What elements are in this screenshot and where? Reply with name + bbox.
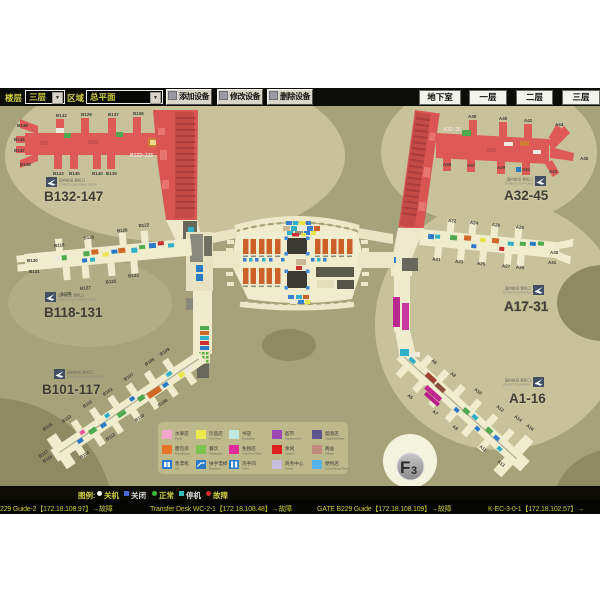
svg-text:B145: B145: [69, 171, 80, 176]
svg-text:国内航班 登机口: 国内航班 登机口: [67, 370, 94, 375]
svg-text:国内航班 登机口: 国内航班 登机口: [505, 378, 532, 383]
svg-text:A1-16: A1-16: [509, 391, 546, 406]
svg-text:Convenience Store: Convenience Store: [325, 467, 349, 471]
svg-text:Breadhouse: Breadhouse: [175, 452, 191, 456]
svg-text:DOMESTIC BOARDING: DOMESTIC BOARDING: [503, 383, 531, 387]
svg-text:Supermarket: Supermarket: [285, 437, 301, 441]
svg-text:国内航班 登机口: 国内航班 登机口: [507, 177, 534, 182]
svg-text:A26: A26: [492, 222, 501, 228]
svg-text:B148: B148: [17, 123, 28, 128]
svg-text:B129: B129: [81, 112, 92, 117]
svg-text:B132~135: B132~135: [130, 153, 153, 159]
svg-text:Fruits: Fruits: [175, 437, 183, 441]
svg-text:B139: B139: [106, 171, 117, 176]
svg-text:B118: B118: [54, 242, 65, 248]
svg-text:3: 3: [411, 465, 417, 477]
svg-text:Lift: Lift: [175, 467, 179, 471]
svg-text:Center: Center: [285, 467, 293, 471]
svg-text:A21: A21: [432, 257, 441, 263]
svg-text:B125: B125: [83, 234, 95, 240]
svg-text:Bookshop: Bookshop: [242, 437, 255, 441]
svg-text:国内航班 登机口: 国内航班 登机口: [58, 293, 85, 298]
svg-text:B130: B130: [27, 258, 38, 263]
svg-text:Cigarette&Wine: Cigarette&Wine: [325, 437, 345, 441]
svg-text:Duty Free Shop: Duty Free Shop: [242, 452, 262, 456]
svg-text:A28: A28: [515, 224, 524, 230]
svg-text:F: F: [400, 458, 410, 477]
svg-text:B118-131: B118-131: [44, 305, 103, 320]
svg-text:A32-45: A32-45: [504, 188, 549, 203]
svg-text:DOMESTIC BOARDING: DOMESTIC BOARDING: [503, 291, 531, 295]
svg-text:B126: B126: [117, 227, 129, 233]
svg-text:A44: A44: [555, 122, 564, 127]
svg-text:A45: A45: [580, 156, 589, 161]
svg-text:A42: A42: [524, 118, 533, 123]
svg-text:A39: A39: [497, 165, 506, 170]
svg-text:A23: A23: [455, 259, 464, 265]
svg-text:Escalator: Escalator: [209, 467, 221, 471]
svg-text:Tea Shop: Tea Shop: [209, 437, 221, 441]
svg-text:国内航班 登机口: 国内航班 登机口: [505, 286, 532, 291]
svg-text:A25: A25: [477, 261, 486, 267]
svg-text:B143: B143: [53, 171, 64, 176]
svg-text:A24: A24: [470, 220, 479, 226]
svg-text:B137: B137: [108, 112, 119, 117]
svg-text:A29: A29: [516, 265, 525, 271]
svg-text:A38: A38: [468, 114, 477, 119]
svg-text:B106: B106: [133, 111, 144, 116]
svg-text:国内航班 登机口: 国内航班 登机口: [59, 178, 86, 183]
svg-text:B132-147: B132-147: [44, 189, 103, 204]
svg-text:Offices: Offices: [325, 452, 334, 456]
svg-text:B142: B142: [56, 113, 67, 118]
svg-text:B131: B131: [29, 269, 40, 274]
svg-text:B140: B140: [92, 171, 103, 176]
svg-text:A31: A31: [548, 260, 557, 265]
svg-text:DOMESTIC BOARDING GATES: DOMESTIC BOARDING GATES: [58, 298, 96, 302]
svg-text:A37: A37: [467, 163, 476, 168]
svg-text:A43: A43: [549, 169, 558, 174]
svg-text:B147: B147: [14, 148, 25, 153]
svg-text:B122: B122: [138, 222, 150, 228]
svg-text:A30: A30: [550, 250, 559, 255]
svg-text:DOMESTIC BOARDING GATES: DOMESTIC BOARDING GATES: [67, 375, 105, 379]
svg-text:Leisure: Leisure: [285, 452, 295, 456]
svg-text:B127: B127: [80, 285, 92, 291]
svg-text:A17-31: A17-31: [504, 299, 549, 314]
svg-text:Restaurant: Restaurant: [209, 452, 223, 456]
svg-text:Toilet: Toilet: [242, 467, 249, 471]
svg-text:B149: B149: [20, 162, 31, 167]
svg-text:A40: A40: [499, 116, 508, 121]
svg-text:A32~35: A32~35: [443, 127, 461, 133]
svg-text:B146: B146: [14, 137, 25, 142]
svg-text:A41: A41: [522, 167, 531, 172]
svg-text:A22: A22: [448, 218, 457, 224]
svg-text:B125: B125: [105, 279, 117, 285]
svg-text:B101-117: B101-117: [42, 382, 101, 397]
svg-text:A36: A36: [443, 162, 452, 167]
svg-text:DOMESTIC BOARDING GATES: DOMESTIC BOARDING GATES: [59, 183, 97, 187]
svg-text:DOMESTIC BOARDING: DOMESTIC BOARDING: [505, 182, 533, 186]
svg-text:A27: A27: [502, 263, 511, 269]
svg-text:B123: B123: [128, 272, 140, 278]
